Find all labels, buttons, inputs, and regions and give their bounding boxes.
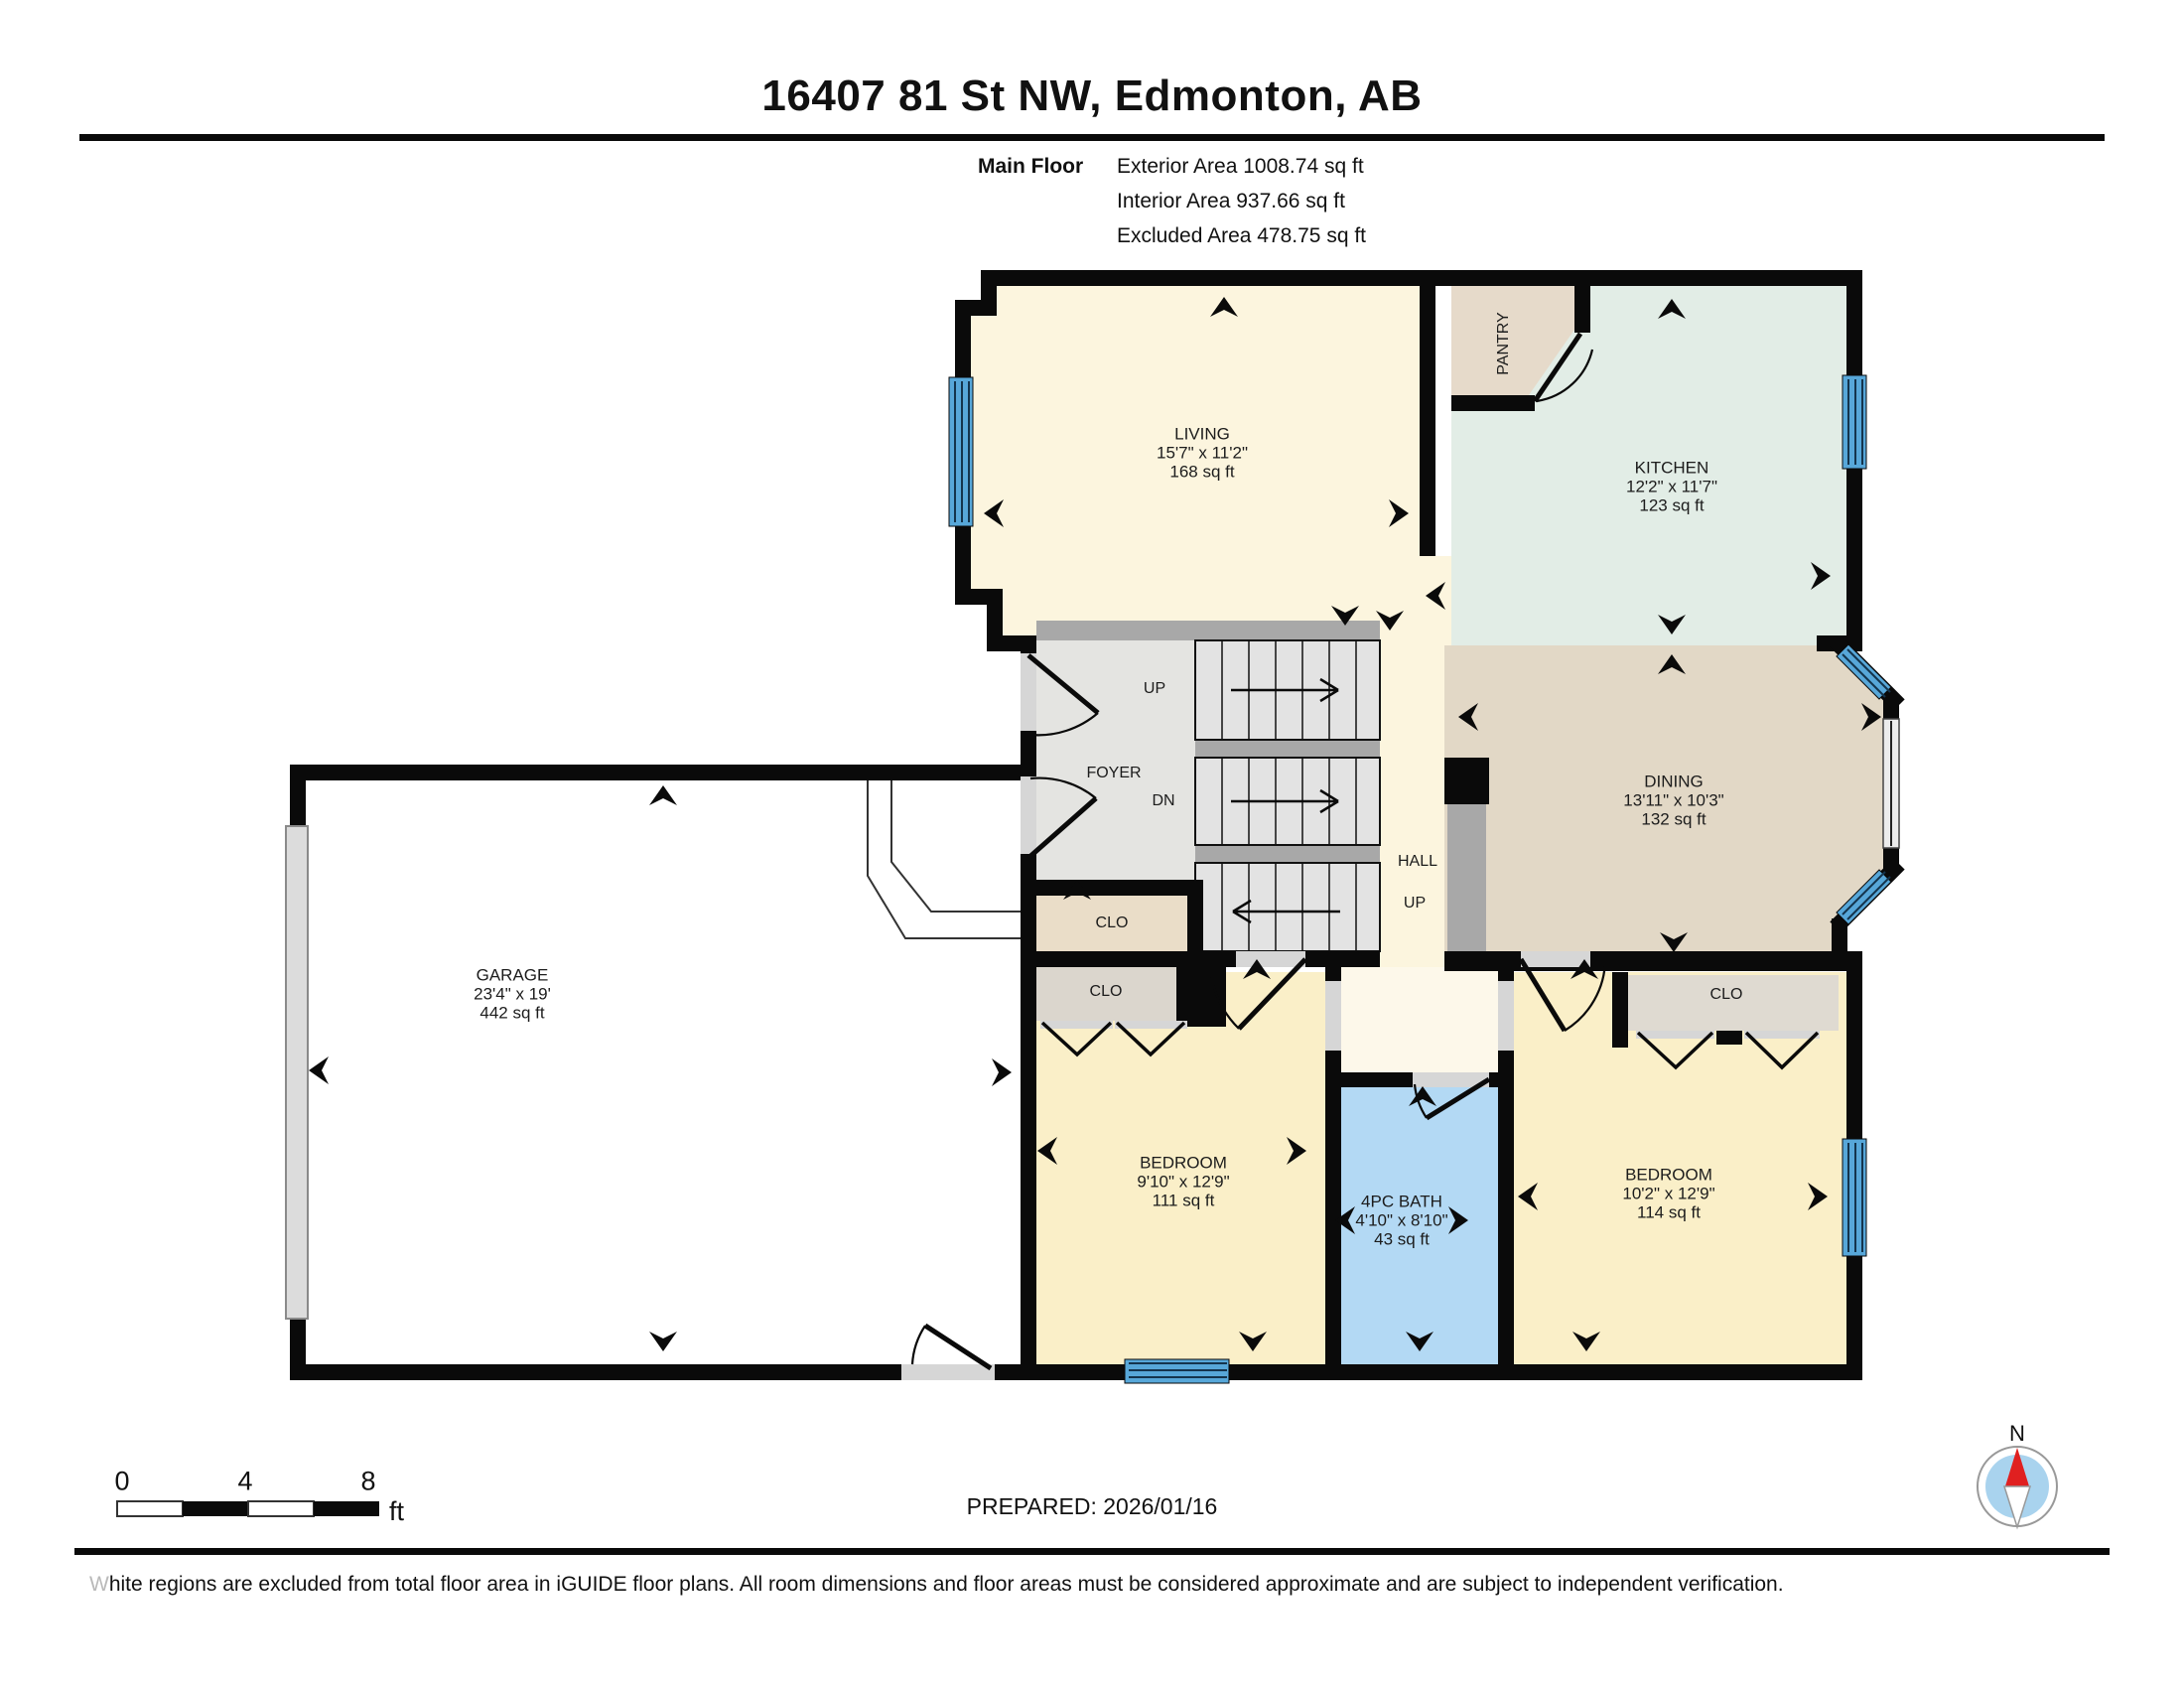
room-garage-fill <box>306 780 1021 1364</box>
room-vestibule-fill <box>1341 967 1498 1072</box>
scale-tick-8: 8 <box>360 1467 375 1497</box>
garage-name: GARAGE <box>474 966 551 985</box>
garage-label: GARAGE 23'4" x 19' 442 sq ft <box>474 966 551 1023</box>
exterior-area: Exterior Area 1008.74 sq ft <box>1117 155 1364 179</box>
dining-area: 132 sq ft <box>1623 810 1723 829</box>
footer-disclaimer-rest: hite regions are excluded from total flo… <box>109 1573 1784 1596</box>
scale-unit: ft <box>389 1496 404 1527</box>
bath-label: 4PC BATH 4'10" x 8'10" 43 sq ft <box>1355 1193 1447 1249</box>
stair-flights <box>1195 640 1380 951</box>
stairs-down-label: DN <box>1152 792 1174 810</box>
scale-bar-graphic <box>117 1501 379 1516</box>
prepared-date: PREPARED: 2026/01/16 <box>967 1493 1218 1520</box>
pantry-label: PANTRY <box>1495 312 1513 374</box>
living-dims: 15'7" x 11'2" <box>1157 444 1248 463</box>
stairs-up-label: UP <box>1144 680 1165 698</box>
bedroom2-name: BEDROOM <box>1622 1166 1714 1185</box>
garage-dims: 23'4" x 19' <box>474 985 551 1004</box>
footer-disclaimer-lead: W <box>89 1573 109 1596</box>
floor-plan-canvas <box>0 0 2184 1688</box>
kitchen-area: 123 sq ft <box>1626 496 1717 515</box>
compass-icon <box>1978 1447 2057 1527</box>
bedroom1-label: BEDROOM 9'10" x 12'9" 111 sq ft <box>1137 1154 1229 1210</box>
garage-door <box>286 826 308 1319</box>
scale-tick-0: 0 <box>114 1467 129 1497</box>
bedroom2-label: BEDROOM 10'2" x 12'9" 114 sq ft <box>1622 1166 1714 1222</box>
bedroom1-name: BEDROOM <box>1137 1154 1229 1173</box>
bath-name: 4PC BATH <box>1355 1193 1447 1211</box>
closet2-label: CLO <box>1090 983 1123 1001</box>
bath-area: 43 sq ft <box>1355 1230 1447 1249</box>
dining-name: DINING <box>1623 773 1723 791</box>
dining-label: DINING 13'11" x 10'3" 132 sq ft <box>1623 773 1723 829</box>
hall-up-label: UP <box>1404 895 1426 913</box>
kitchen-dims: 12'2" x 11'7" <box>1626 478 1717 496</box>
floor-plan-page: 16407 81 St NW, Edmonton, AB Main Floor … <box>0 0 2184 1688</box>
closet1-label: CLO <box>1096 914 1129 932</box>
page-title: 16407 81 St NW, Edmonton, AB <box>0 71 2184 121</box>
bedroom1-dims: 9'10" x 12'9" <box>1137 1173 1229 1192</box>
excluded-area: Excluded Area 478.75 sq ft <box>1117 224 1366 248</box>
closet3-label: CLO <box>1710 986 1743 1004</box>
foyer-label: FOYER <box>1086 765 1141 782</box>
footer-disclaimer: White regions are excluded from total fl… <box>89 1573 1784 1597</box>
room-hall-fill <box>1380 635 1444 972</box>
interior-area: Interior Area 937.66 sq ft <box>1117 190 1345 213</box>
living-label: LIVING 15'7" x 11'2" 168 sq ft <box>1157 425 1248 482</box>
hall-label: HALL <box>1398 853 1437 871</box>
kitchen-name: KITCHEN <box>1626 459 1717 478</box>
bedroom1-area: 111 sq ft <box>1137 1192 1229 1210</box>
floor-label: Main Floor <box>978 155 1083 179</box>
living-name: LIVING <box>1157 425 1248 444</box>
bedroom2-area: 114 sq ft <box>1622 1203 1714 1222</box>
compass-north-label: N <box>2009 1421 2025 1447</box>
scale-tick-4: 4 <box>237 1467 252 1497</box>
kitchen-label: KITCHEN 12'2" x 11'7" 123 sq ft <box>1626 459 1717 515</box>
bedroom2-dims: 10'2" x 12'9" <box>1622 1185 1714 1203</box>
garage-area: 442 sq ft <box>474 1004 551 1023</box>
dining-dims: 13'11" x 10'3" <box>1623 791 1723 810</box>
living-area: 168 sq ft <box>1157 463 1248 482</box>
bath-dims: 4'10" x 8'10" <box>1355 1211 1447 1230</box>
